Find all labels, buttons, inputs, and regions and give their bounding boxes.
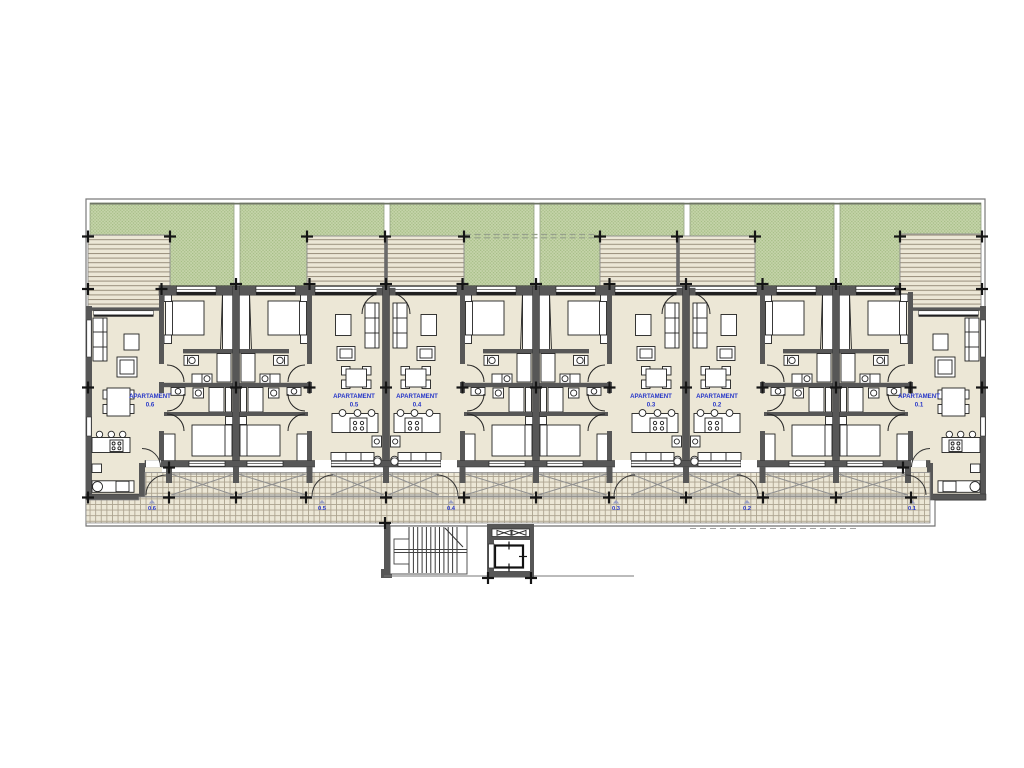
svg-text:0.5: 0.5 xyxy=(350,402,359,409)
svg-text:0.4: 0.4 xyxy=(413,402,422,409)
svg-text:0.1: 0.1 xyxy=(915,402,924,409)
svg-text:0.6: 0.6 xyxy=(148,506,157,512)
svg-text:0.6: 0.6 xyxy=(146,402,155,409)
svg-text:APARTAMENT: APARTAMENT xyxy=(696,393,738,400)
svg-text:0.1: 0.1 xyxy=(908,506,917,512)
svg-text:0.2: 0.2 xyxy=(743,506,751,512)
svg-text:0.4: 0.4 xyxy=(447,506,456,512)
svg-text:APARTAMENT: APARTAMENT xyxy=(333,393,375,400)
svg-text:0.3: 0.3 xyxy=(612,506,621,512)
svg-text:0.2: 0.2 xyxy=(713,402,722,409)
svg-text:0.5: 0.5 xyxy=(318,506,327,512)
svg-text:APARTAMENT: APARTAMENT xyxy=(396,393,438,400)
svg-text:APARTAMENT: APARTAMENT xyxy=(129,393,171,400)
svg-text:0.3: 0.3 xyxy=(647,402,656,409)
svg-text:APARTAMENT: APARTAMENT xyxy=(630,393,672,400)
svg-text:APARTAMENT: APARTAMENT xyxy=(898,393,940,400)
